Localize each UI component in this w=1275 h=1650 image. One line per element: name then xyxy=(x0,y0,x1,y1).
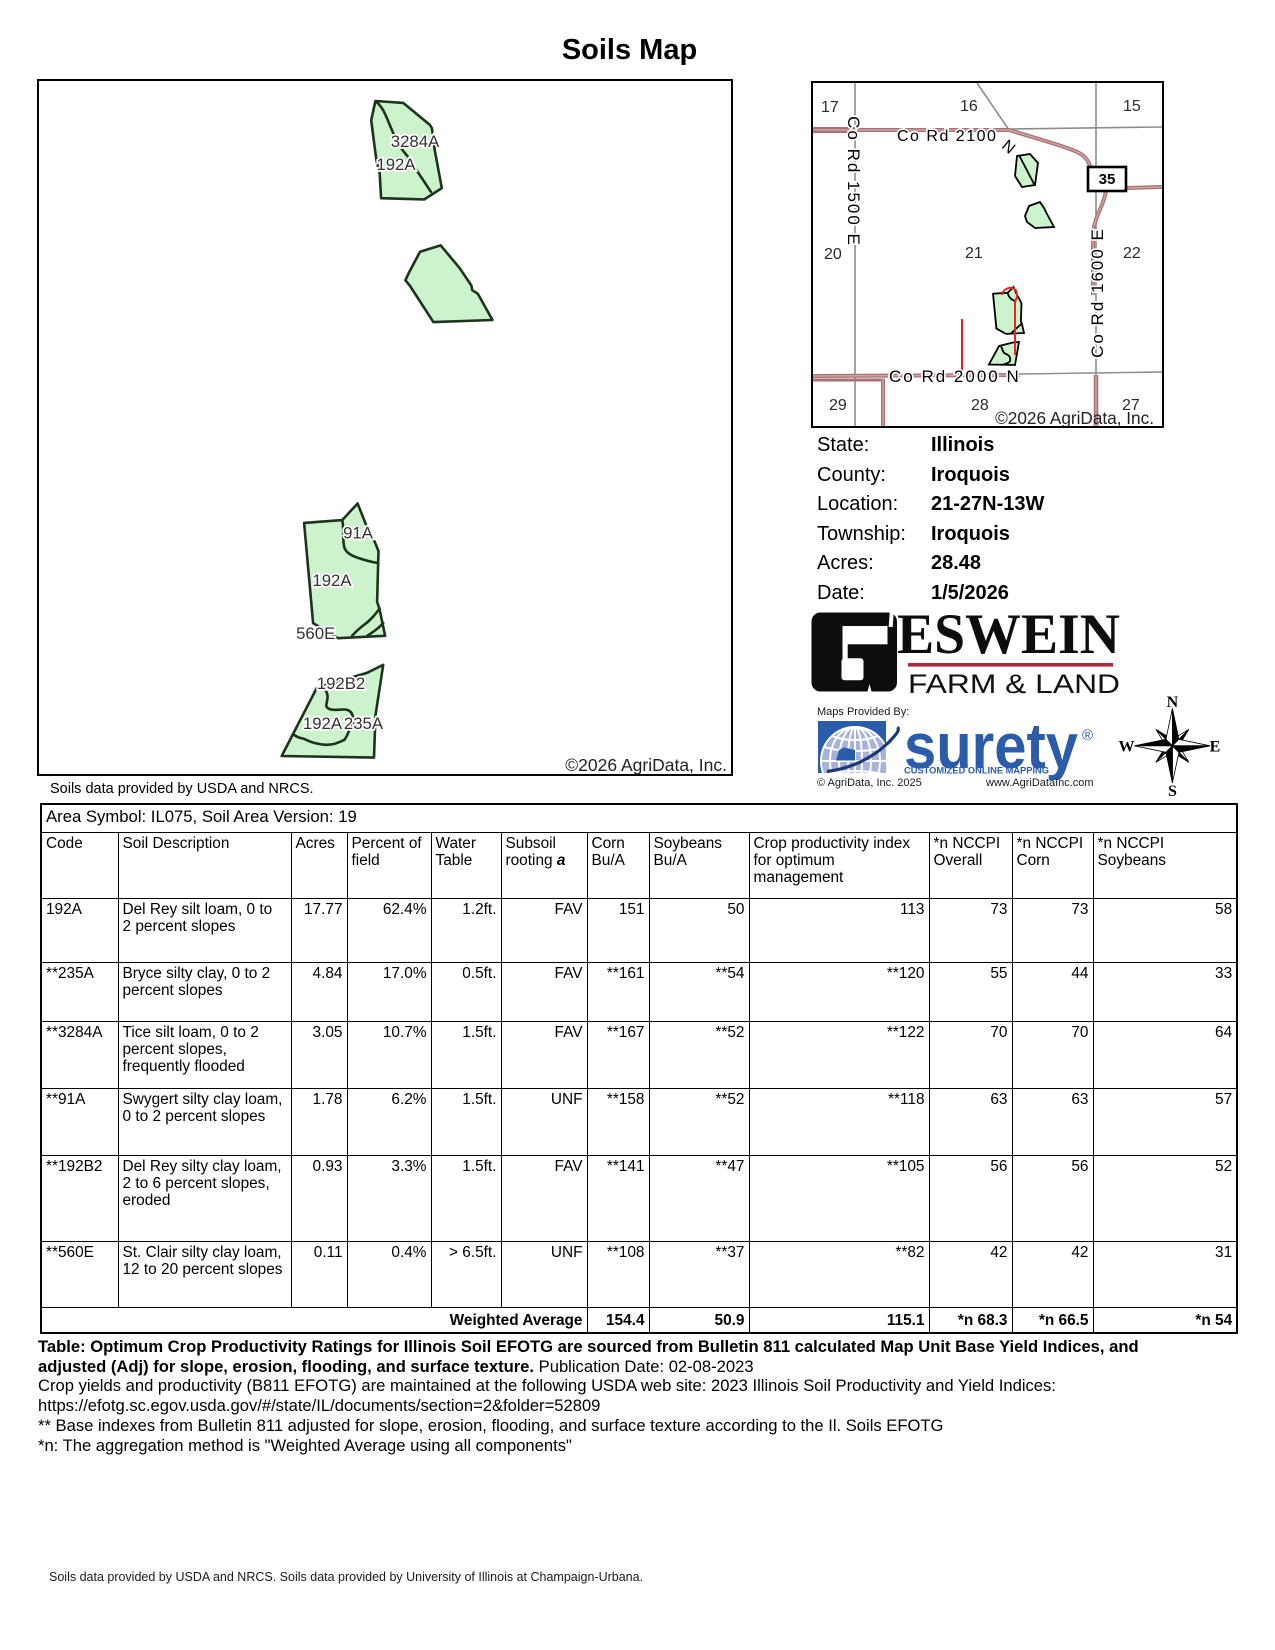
svg-text:560E: 560E xyxy=(296,624,335,643)
svg-text:35: 35 xyxy=(1099,171,1116,188)
svg-text:3284A: 3284A xyxy=(391,132,440,151)
svg-text:29: 29 xyxy=(829,397,847,414)
svg-text:W: W xyxy=(1119,739,1135,756)
svg-text:192A: 192A xyxy=(303,714,343,733)
svg-text:Co Rd 2100: Co Rd 2100 xyxy=(897,128,997,145)
svg-text:N: N xyxy=(1167,695,1179,711)
svg-text:ESWEIN: ESWEIN xyxy=(897,608,1120,666)
svg-text:91A: 91A xyxy=(343,524,374,543)
svg-text:©2026 AgriData, Inc.: ©2026 AgriData, Inc. xyxy=(995,408,1154,426)
svg-text:22: 22 xyxy=(1123,245,1141,262)
svg-text:Co Rd 1600 E: Co Rd 1600 E xyxy=(1088,227,1107,358)
svg-text:192A: 192A xyxy=(312,571,352,590)
svg-text:192B2: 192B2 xyxy=(317,674,366,693)
svg-text:16: 16 xyxy=(960,98,978,115)
svg-text:17: 17 xyxy=(821,99,839,116)
svg-text:21: 21 xyxy=(965,245,983,262)
svg-text:235A: 235A xyxy=(344,714,384,733)
svg-text:Co Rd 2000 N: Co Rd 2000 N xyxy=(889,367,1021,386)
svg-text:192A: 192A xyxy=(376,155,416,174)
svg-text:E: E xyxy=(1210,739,1221,756)
svg-text:15: 15 xyxy=(1123,98,1141,115)
svg-text:S: S xyxy=(1168,783,1177,800)
svg-text:N: N xyxy=(998,137,1018,157)
svg-text:Co Rd 1500 E: Co Rd 1500 E xyxy=(844,116,863,247)
svg-text:28: 28 xyxy=(971,397,989,414)
svg-text:20: 20 xyxy=(824,246,842,263)
svg-text:FARM & LAND: FARM & LAND xyxy=(908,669,1120,699)
svg-text:CUSTOMIZED ONLINE MAPPING: CUSTOMIZED ONLINE MAPPING xyxy=(904,766,1049,777)
svg-text:®: ® xyxy=(1082,727,1093,744)
